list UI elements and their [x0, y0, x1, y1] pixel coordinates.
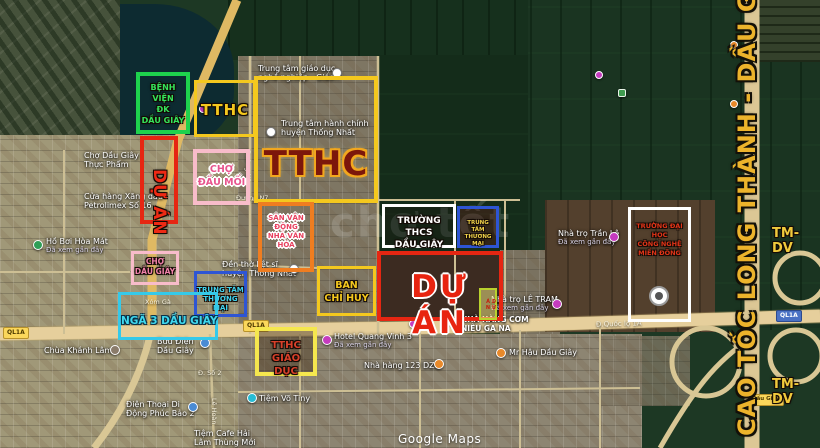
overlay-tthc-giao-duc-line2: GIÁO DỤC	[259, 352, 313, 378]
poi-nha-hang-123[interactable]: Nhà hàng 123 DZÔ	[364, 361, 441, 370]
overlay-truong-dai-hoc-line3: MIỀN ĐÔNG	[631, 249, 688, 258]
overlay-tm-dv-label: TM-DV	[772, 377, 820, 407]
overlay-truong-thcs-line2: DẦU GIÂY	[385, 239, 453, 251]
overlay-du-an-mini-box: DỰ ÁN	[479, 288, 497, 320]
overlay-tthc-giao-duc-line1: TTHC	[259, 339, 313, 352]
hotel-pin-icon[interactable]	[322, 335, 332, 345]
poi-tiem-vo[interactable]: Tiệm Võ Tiny	[259, 394, 310, 403]
overlay-tthc-giao-duc-box: TTHC GIÁO DỤC	[255, 327, 317, 376]
overlay-cho-dau-giay-line1: CHỢ	[134, 257, 176, 267]
overlay-truong-thcs-line1: TRƯỜNG THCS	[385, 215, 453, 239]
overlay-ban-chi-huy-line2: CHỈ HUY	[320, 292, 373, 305]
overlay-ban-chi-huy-box: BAN CHỈ HUY	[317, 266, 376, 316]
poi-ho-boi[interactable]: Hồ Bơi Hòa Mát Đã xem gần đây	[46, 237, 108, 255]
overlay-san-van-dong-line1: SÂN VẬN ĐỘNG	[262, 214, 310, 232]
overlay-du-an-mini-label: DỰ ÁN	[485, 291, 497, 318]
park-marker-icon[interactable]	[618, 89, 626, 97]
overlay-cho-dau-giay-line2: DẦU GIÂY	[134, 267, 176, 277]
poi-dien-thoai[interactable]: Điện Thoại Di Động Phúc Bảo 2	[126, 400, 195, 418]
lodging-pin-icon[interactable]	[552, 299, 562, 309]
overlay-du-an-left-label: DỰ ÁN	[149, 169, 169, 199]
pagoda-pin-icon[interactable]	[110, 345, 120, 355]
poi-dot-icon[interactable]	[595, 71, 603, 79]
overlay-du-an-left-box: DỰ ÁN	[140, 136, 178, 224]
overlay-nga-3-box: NGÃ 3 DẦU GIÂY	[118, 292, 218, 340]
route-badge-ql1a: QL1A	[776, 310, 802, 322]
overlay-nga-3-label: NGÃ 3 DẦU GIÂY	[121, 315, 215, 327]
university-pin-icon[interactable]	[649, 286, 669, 306]
route-badge-ql1a: QL1A	[3, 327, 29, 339]
overlay-tm-dv-label: TM-DV	[772, 226, 820, 256]
restaurant-pin-icon[interactable]	[434, 359, 444, 369]
food-pin-icon[interactable]	[496, 348, 506, 358]
overlay-truong-dai-hoc-box: TRƯỜNG ĐẠI HỌC CÔNG NGHỆ MIỀN ĐÔNG	[628, 207, 691, 322]
overlay-cao-toc-label: CAO TỐC LONG THÀNH - DẦU GIÂY	[733, 24, 769, 436]
overlay-truong-dai-hoc-line1: TRƯỜNG ĐẠI HỌC	[631, 222, 688, 240]
overlay-benh-vien-line1: BỆNH VIỆN	[140, 82, 186, 104]
overlay-cho-dau-moi-box: CHỢ ĐẦU MỐI	[193, 149, 250, 205]
overlay-ttm-right-box: TRUNG TÂM THƯƠNG MẠI	[457, 206, 499, 248]
poi-chua-khanh-lam[interactable]: Chùa Khánh Lâm	[44, 346, 112, 355]
overlay-truong-dai-hoc-line2: CÔNG NGHỆ	[631, 240, 688, 249]
lodging-pin-icon[interactable]	[609, 232, 619, 242]
overlay-ttm-right-line1: TRUNG TÂM	[460, 220, 496, 234]
overlay-san-van-dong-box: SÂN VẬN ĐỘNG NHÀ VĂN HÓA	[258, 202, 314, 272]
overlay-tthc-small-label: TTHC	[197, 101, 253, 119]
overlay-cho-dau-moi-line1: CHỢ	[197, 163, 246, 176]
overlay-ban-chi-huy-line1: BAN	[320, 279, 373, 292]
overlay-ttm-right-line2: THƯƠNG MẠI	[460, 234, 496, 248]
overlay-tthc-big-box: TTHC	[254, 76, 378, 203]
satellite-map[interactable]: chợ tốt Trung tâm giáo dục nghề nghiệp -…	[0, 0, 820, 448]
overlay-benh-vien-line2: ĐK	[140, 104, 186, 115]
overlay-cho-dau-moi-line2: ĐẦU MỐI	[197, 176, 246, 189]
google-maps-attribution: Google Maps	[398, 432, 481, 446]
overlay-truong-thcs-box: TRƯỜNG THCS DẦU GIÂY	[382, 204, 456, 248]
overlay-tthc-big-label: TTHC	[258, 144, 374, 184]
shop-pin-icon[interactable]	[247, 393, 257, 403]
overlay-benh-vien-box: BỆNH VIỆN ĐK DẦU GIÂY	[136, 72, 190, 134]
poi-tiem-cafe[interactable]: Tiệm Cafe Hải Lâm Thùng Mới	[194, 429, 255, 447]
overlay-cho-dau-giay-box: CHỢ DẦU GIÂY	[131, 251, 179, 285]
phone-shop-pin-icon[interactable]	[188, 402, 198, 412]
overlay-tthc-small-box: TTHC	[194, 80, 256, 137]
road-label-le-hoan: Lê Hoàn	[210, 398, 218, 425]
poi-mr-hau[interactable]: Mr Hậu Dầu Giây	[509, 348, 577, 357]
road-label-d-so-2: Đ. Số 2	[198, 369, 221, 377]
overlay-san-van-dong-line2: NHÀ VĂN HÓA	[262, 232, 310, 250]
poi-market-food[interactable]: Chợ Dầu Giây Thực Phẩm	[84, 151, 139, 169]
overlay-benh-vien-line3: DẦU GIÂY	[140, 115, 186, 126]
pool-pin-icon[interactable]	[33, 240, 43, 250]
